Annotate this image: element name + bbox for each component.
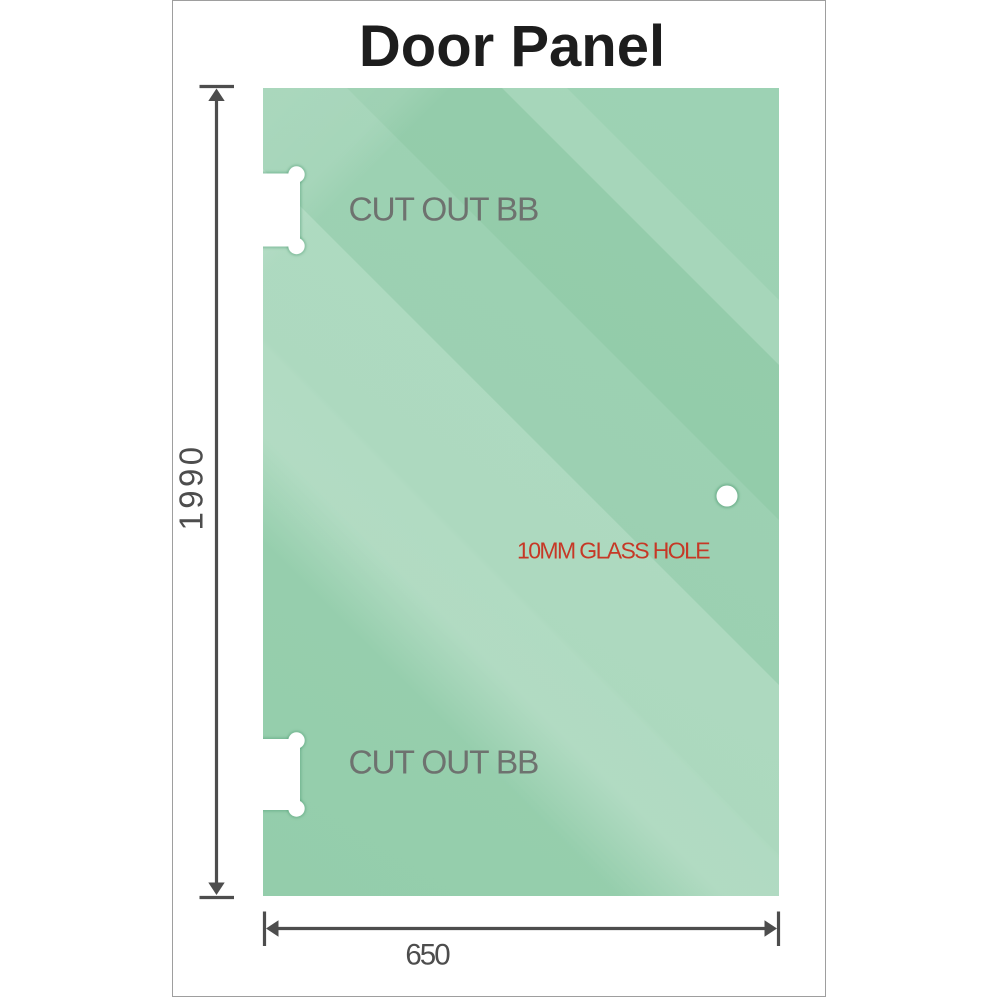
svg-text:650: 650 (405, 939, 450, 972)
svg-text:Door Panel: Door Panel (359, 14, 665, 79)
svg-text:CUT OUT BB: CUT OUT BB (349, 745, 539, 782)
svg-text:CUT OUT BB: CUT OUT BB (349, 192, 539, 229)
svg-text:10MM GLASS HOLE: 10MM GLASS HOLE (517, 538, 710, 564)
svg-text:1990: 1990 (173, 443, 210, 530)
